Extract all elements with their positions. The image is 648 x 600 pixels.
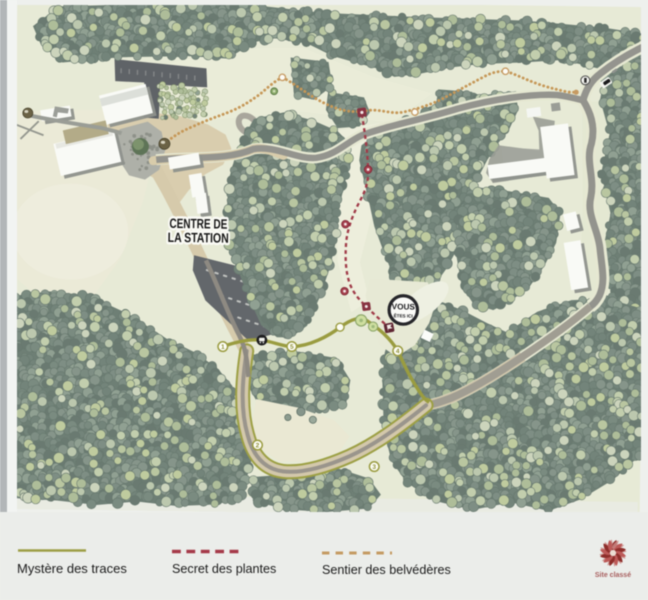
svg-text:5: 5 <box>290 344 294 351</box>
svg-text:LA STATION: LA STATION <box>168 230 229 246</box>
svg-text:Sentier des belvédères: Sentier des belvédères <box>322 563 451 577</box>
svg-text:1: 1 <box>221 344 225 351</box>
svg-text:4: 4 <box>396 348 400 355</box>
svg-text:2: 2 <box>256 442 260 449</box>
svg-text:VOUS: VOUS <box>392 302 416 311</box>
svg-text:Secret des plantes: Secret des plantes <box>172 562 276 576</box>
svg-text:Mystère des traces: Mystère des traces <box>17 561 127 576</box>
svg-text:Site classé: Site classé <box>595 572 631 579</box>
svg-text:3: 3 <box>372 464 376 471</box>
